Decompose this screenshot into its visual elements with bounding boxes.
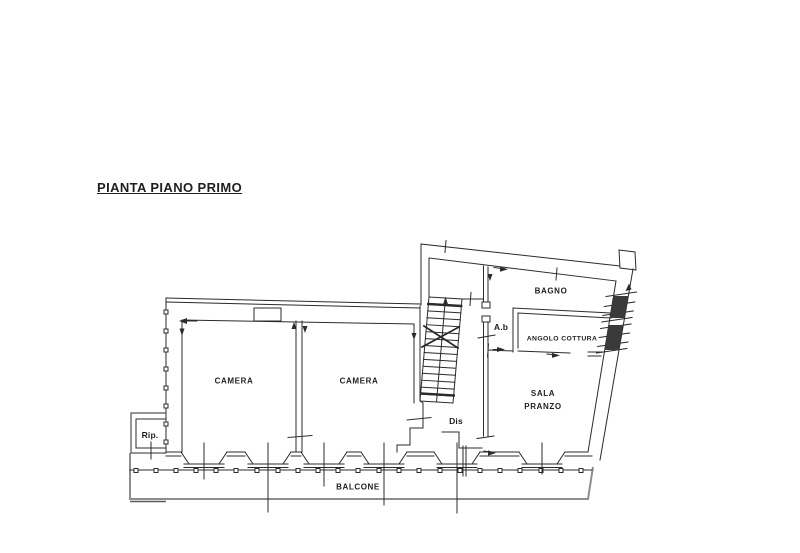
room-label-camera-2: CAMERA [340,377,379,386]
room-label-ripostiglio: Rip. [142,430,159,440]
arrow-camera2-right [412,333,417,340]
french-window-1 [181,443,227,479]
arrow-sala-door [488,450,496,455]
french-window-6 [519,443,565,474]
balcony-slab-edge [130,453,593,499]
arrow-ab-door [497,347,505,352]
upper-left-wall [421,244,429,305]
exterior-top-wall-left-block [166,298,420,308]
right-wall-windows-fill [605,296,629,350]
dis-left-step-wall [397,401,423,452]
arrow-camera1-door [179,318,187,324]
balcony-outline [130,453,593,499]
room-label-balcone: BALCONE [336,483,380,492]
french-window-5 [434,443,480,513]
floor-plan-page: PIANTA PIANO PRIMO [0,0,800,553]
room-label-angolo-cottura: ANGOLO COTTURA [527,336,598,343]
camera2-right-wall [414,306,420,403]
room-label-sala-line1: SALA [524,387,561,400]
door-jamb-lower [482,316,490,322]
room-label-sala-pranzo: SALA PRANZO [524,387,561,413]
dis-door-axis [463,446,466,476]
room-label-bagno: BAGNO [535,287,568,296]
door-arrow-shafts [186,268,557,453]
room-label-sala-line2: PRANZO [524,400,561,413]
arrow-angolo-door [552,353,560,358]
arrow-divider-down [303,326,308,333]
french-window-3 [301,443,347,486]
arrow-camera1-wall [180,329,185,337]
french-window-2 [245,443,291,512]
dis-inner-walls [442,432,482,448]
room-label-anti-bagno: A.b [494,322,508,332]
camera-top-wall [182,320,414,324]
floor-plan-drawing [0,0,800,553]
wall-pillar [254,308,281,321]
chimney [619,250,636,270]
room-label-camera-1: CAMERA [215,377,254,386]
room-label-disimpegno: Dis [449,416,463,426]
ab-sala-wall [484,266,489,436]
plan-linework [130,241,637,514]
right-window-lower [605,325,624,350]
upper-top-wall [421,244,620,281]
camera-divider-wall [296,321,302,452]
bottom-wall [166,452,592,456]
french-window-4 [361,443,407,505]
door-jamb-upper [482,302,490,308]
stairs-direction-line [437,298,446,402]
stairs-break-cross [422,326,459,348]
angolo-cottura-walls [513,308,611,356]
